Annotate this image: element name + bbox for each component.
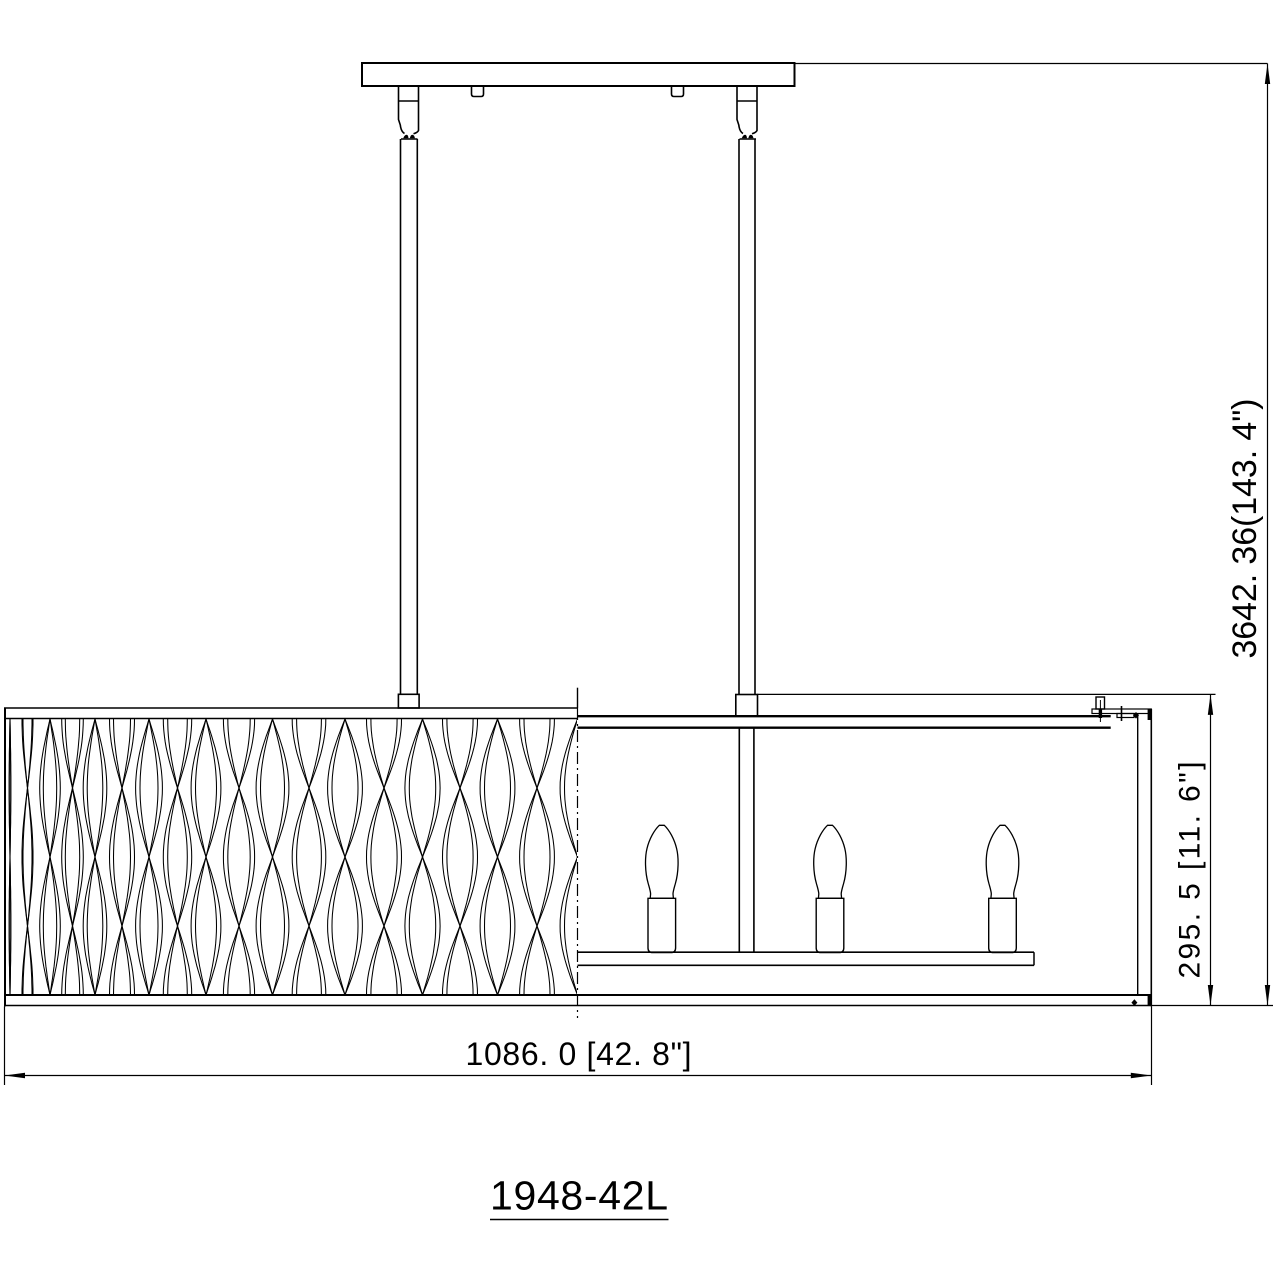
svg-text:3642. 36(143. 4"): 3642. 36(143. 4") [1226,399,1264,659]
svg-text:295. 5 [11. 6"]: 295. 5 [11. 6"] [1174,762,1207,979]
svg-text:1086. 0 [42. 8"]: 1086. 0 [42. 8"] [466,1036,692,1072]
svg-text:1948-42L: 1948-42L [490,1172,668,1218]
